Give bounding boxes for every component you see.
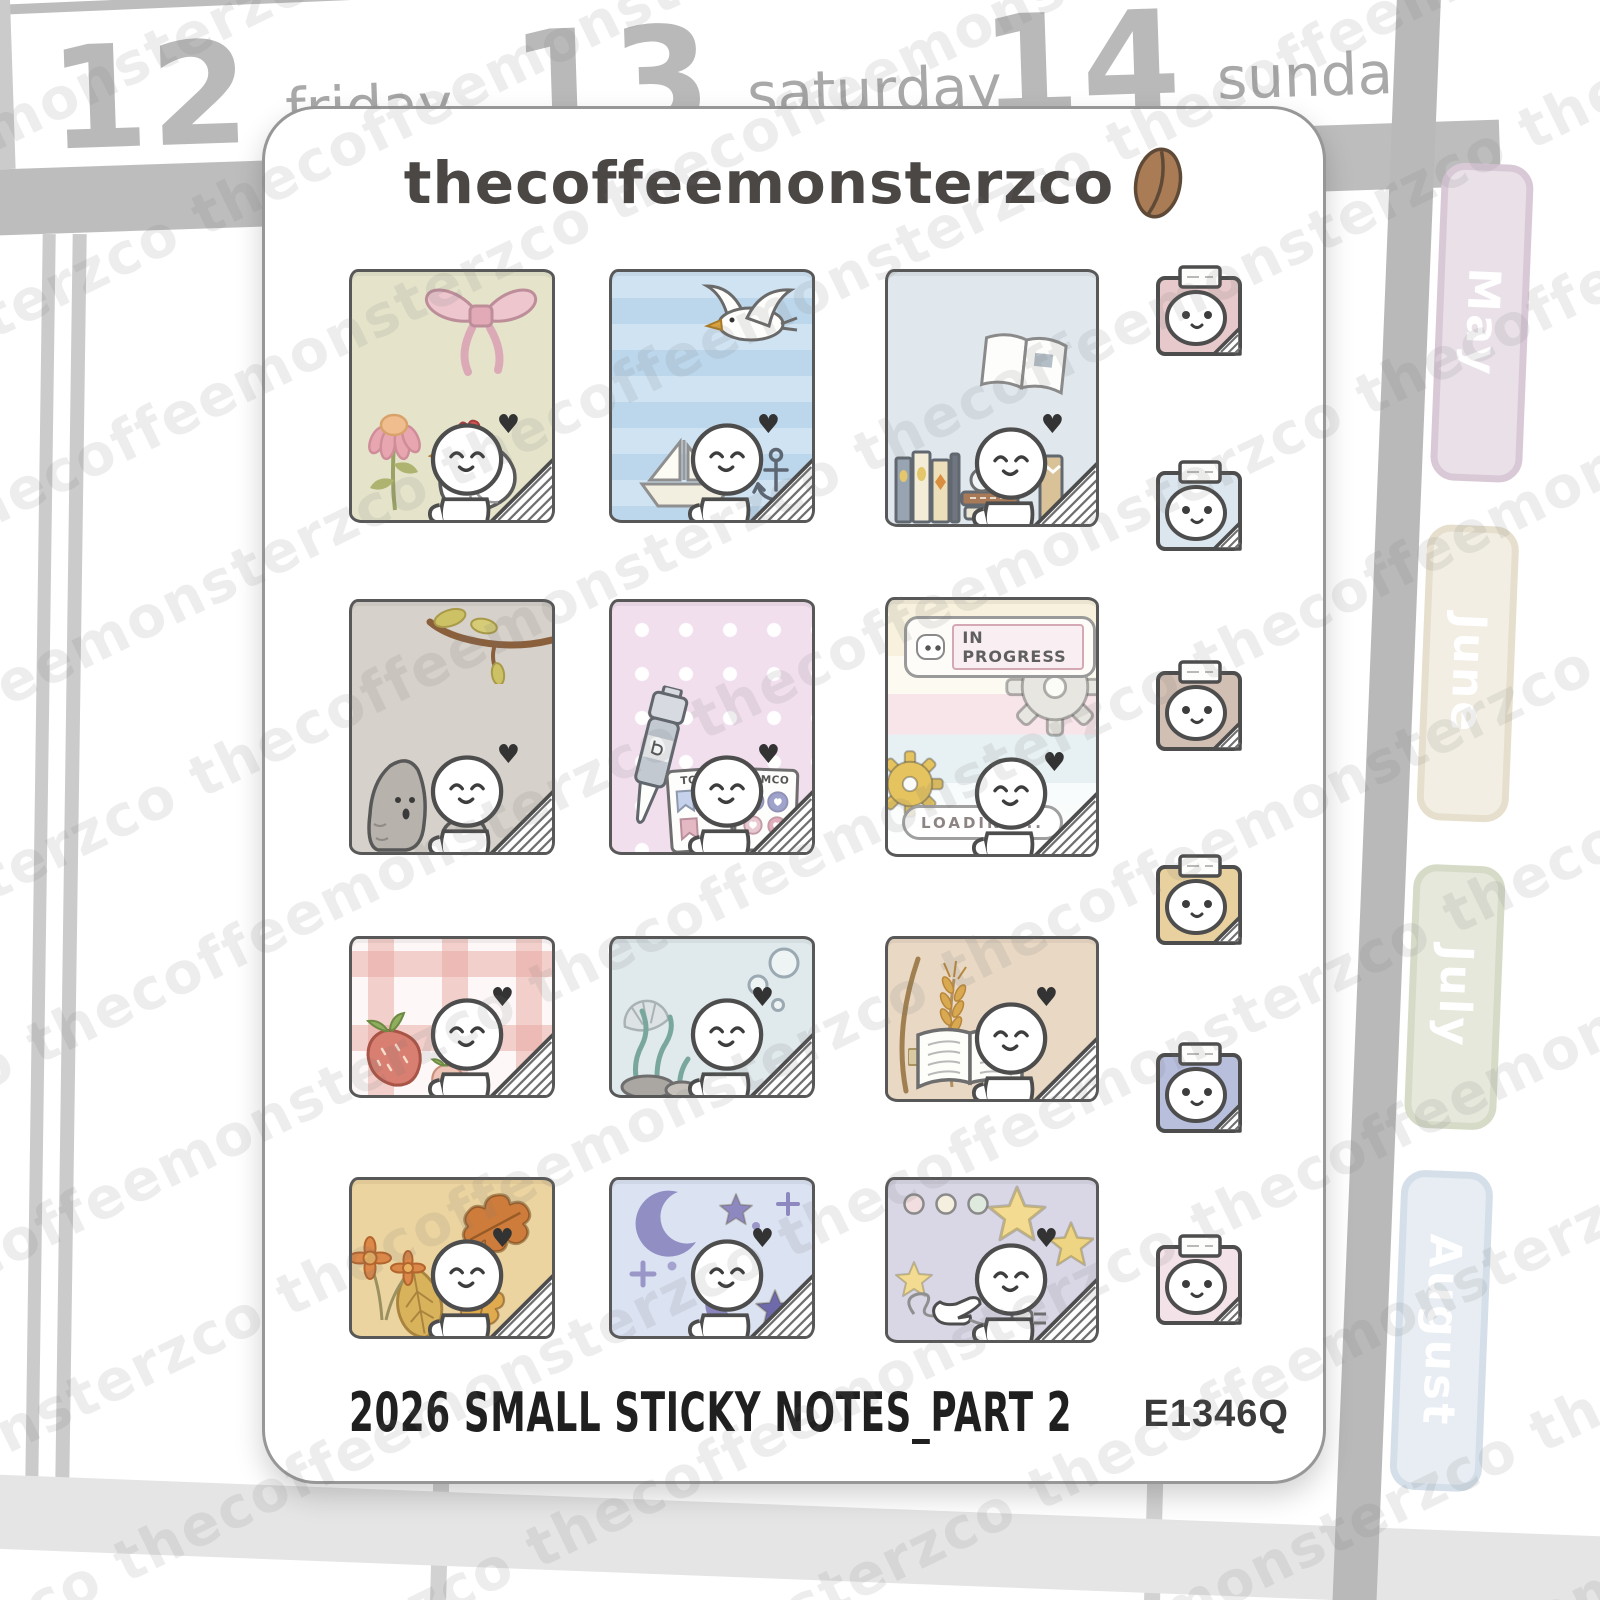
peeking-character [675,744,815,855]
peeking-character [675,987,815,1098]
month-tab-june: June [1416,524,1520,823]
peeking-character [415,1228,555,1339]
mini-sticky-note-2 [1149,457,1249,557]
peeking-character [959,746,1099,857]
sticky-note-night: ♥ [609,1177,815,1339]
month-tab-label: June [1440,612,1496,735]
sticky-note-bow: ♥ [349,269,555,523]
month-tab-may: May [1430,162,1535,483]
mini-sticky-note-3 [1149,657,1249,757]
month-tab-july: July [1404,863,1507,1130]
peeking-character [675,412,815,523]
month-tab-label: July [1427,944,1482,1049]
sticky-note-books: ♥ [885,269,1099,527]
mini-sticky-note-4 [1149,851,1249,951]
column-divider [0,0,16,169]
tree-branch-icon [392,606,552,684]
ribbon-bow-icon [416,276,546,376]
open-book-icon [973,323,1080,405]
brand-logo-text: thecoffeemonsterzco [404,149,1114,217]
sticker-sheet: thecoffeemonsterzco [262,106,1326,1484]
sticky-note-sailboat: ♥ [609,269,815,523]
sticky-note-gingham: ♥ [349,936,555,1098]
in-progress-label: IN PROGRESS [962,628,1066,666]
sheet-title: 2026 SMALL STICKY NOTES_PART 2 [349,1381,1072,1444]
month-tab-label: August [1412,1233,1471,1428]
sticky-note-ocean: ♥ [609,936,815,1098]
in-progress-badge: IN PROGRESS [904,616,1096,678]
brand-header: thecoffeemonsterzco [265,145,1323,221]
sticky-note-window: ♥ [885,1177,1099,1343]
badge-face-icon [916,634,945,660]
coffee-bean-icon [1132,145,1184,221]
sticky-note-autumn: ♥ [349,1177,555,1339]
sticky-note-branch: ♥ [349,599,555,855]
peeking-character [415,987,555,1098]
sticky-note-wheat: ♥ [885,936,1099,1102]
peeking-character [959,991,1099,1102]
peeking-character [959,1232,1099,1343]
sticky-note-stationery: TCMC TCMCO [609,599,815,855]
column-divider [25,234,55,1484]
mini-sticky-note-6 [1149,1231,1249,1331]
mini-sticky-note-5 [1149,1039,1249,1139]
sheet-product-code: E1346Q [1144,1393,1289,1436]
peeking-character [415,744,555,855]
mini-sticky-note-1 [1149,262,1249,362]
peeking-character [959,416,1099,527]
day-number: 12 [48,39,253,156]
peeking-character [675,1228,815,1339]
sticky-note-in-progress: IN PROGRESS LOADING... ♥ [885,597,1099,857]
peeking-character [415,412,555,523]
month-tab-august: August [1389,1169,1494,1492]
month-tab-label: May [1454,267,1509,379]
seagull-icon [691,278,806,353]
product-image: 12 friday 13 saturday 14 sunday May [0,0,1600,1600]
column-divider [55,234,86,1484]
